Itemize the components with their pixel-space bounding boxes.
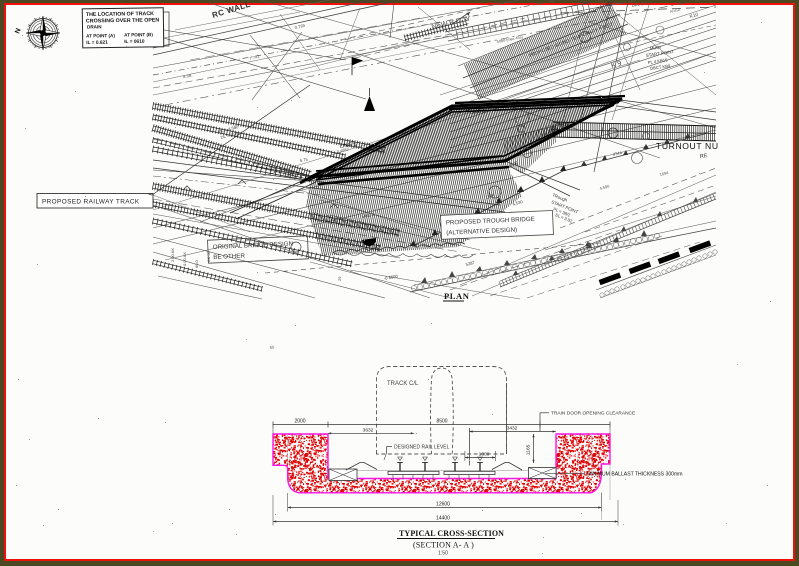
svg-text:55: 55 — [269, 344, 275, 350]
svg-text:5287: 5287 — [465, 260, 476, 267]
svg-text:2.00 AK: 2.00 AK — [170, 248, 175, 262]
svg-text:29: 29 — [337, 276, 342, 281]
svg-text:0.785: 0.785 — [294, 23, 306, 30]
svg-text:DESIGNED RAIL LEVEL: DESIGNED RAIL LEVEL — [394, 445, 450, 451]
svg-text:3632: 3632 — [363, 428, 374, 434]
svg-text:ORIGINAL BRIDGE DESIGN: ORIGINAL BRIDGE DESIGN — [213, 240, 293, 250]
svg-text:PROPOSED RAILWAY TRACK: PROPOSED RAILWAY TRACK — [42, 199, 140, 206]
svg-text:K 9: K 9 — [610, 60, 622, 70]
svg-text:IL = 0.621: IL = 0.621 — [86, 40, 108, 46]
svg-text:1694: 1694 — [659, 170, 670, 177]
svg-text:LINE 5: LINE 5 — [339, 142, 356, 150]
svg-text:TYPICAL CROSS-SECTION: TYPICAL CROSS-SECTION — [399, 529, 504, 538]
svg-text:0.00 AK: 0.00 AK — [182, 252, 187, 266]
svg-text:PLAN: PLAN — [444, 291, 470, 301]
svg-text:1000: 1000 — [479, 452, 490, 458]
svg-text:4.530: 4.530 — [512, 199, 524, 207]
svg-text:TRAIN DOOR OPENING CLEARANCE: TRAIN DOOR OPENING CLEARANCE — [551, 411, 635, 417]
svg-text:MIAN: MIAN — [649, 45, 661, 51]
svg-text:K10: K10 — [689, 12, 699, 20]
svg-text:5462-2: 5462-2 — [361, 212, 375, 219]
svg-text:DRL-3.0: DRL-3.0 — [631, 0, 647, 8]
svg-text:-0 8600: -0 8600 — [383, 273, 399, 281]
svg-text:4.590: 4.590 — [599, 183, 611, 191]
svg-text:12600: 12600 — [436, 502, 450, 508]
svg-text:ARGA: ARGA — [669, 8, 681, 14]
svg-text:14400: 14400 — [436, 516, 450, 522]
svg-text:NEW R.O.W: NEW R.O.W — [431, 15, 471, 31]
svg-text:1:50: 1:50 — [438, 551, 448, 557]
svg-text:RC WALL: RC WALL — [211, 0, 252, 20]
svg-text:DRAIN: DRAIN — [87, 24, 102, 29]
svg-text:RE: RE — [699, 153, 708, 160]
svg-text:a.se.: a.se. — [182, 73, 192, 79]
svg-text:AT POINT (A): AT POINT (A) — [86, 33, 115, 38]
svg-text:1165: 1165 — [526, 444, 532, 455]
svg-text:BE OTHER: BE OTHER — [213, 253, 245, 261]
svg-text:6.75: 6.75 — [299, 157, 309, 163]
svg-text:3432: 3432 — [507, 426, 518, 432]
svg-text:IL = 0610: IL = 0610 — [124, 39, 145, 45]
svg-text:60.0: 60.0 — [194, 259, 199, 268]
svg-text:N: N — [14, 28, 22, 35]
svg-text:1834: 1834 — [485, 192, 496, 200]
svg-text:TRACK C/L: TRACK C/L — [387, 381, 419, 387]
svg-text:2000: 2000 — [294, 419, 305, 425]
svg-text:MINIMUM BALLAST THICKNESS 300m: MINIMUM BALLAST THICKNESS 300mm — [587, 471, 682, 477]
svg-text:(SECTION A- A ): (SECTION A- A ) — [413, 541, 474, 550]
svg-text:5080 (max 45s): 5080 (max 45s) — [496, 35, 523, 44]
svg-text:AT POINT (B): AT POINT (B) — [124, 32, 153, 37]
svg-text:8500: 8500 — [436, 419, 447, 425]
